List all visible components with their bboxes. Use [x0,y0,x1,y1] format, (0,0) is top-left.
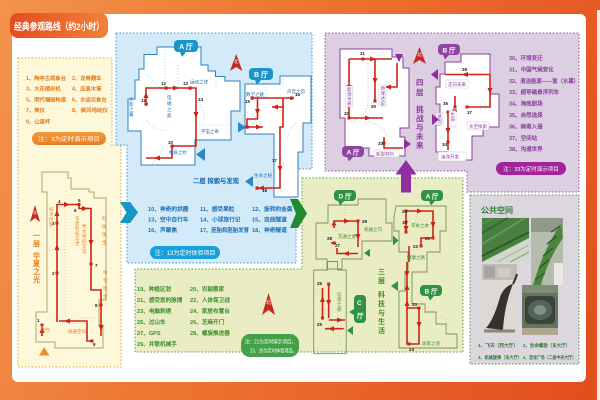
svg-text:33: 33 [378,141,384,146]
svg-text:26: 26 [317,281,323,286]
svg-text:14、小球旅行记: 14、小球旅行记 [200,216,241,224]
svg-text:29、并联机械手: 29、并联机械手 [137,340,177,348]
svg-text:5、明代福船构造: 5、明代福船构造 [26,96,67,104]
svg-text:电磁之奥: 电磁之奥 [167,94,172,119]
svg-text:19: 19 [402,220,408,225]
svg-text:注：33为定时演示项目: 注：33为定时演示项目 [503,165,559,173]
svg-text:居家之道: 居家之道 [422,340,440,347]
svg-text:地球述说: 地球述说 [381,85,386,107]
svg-text:北: 北 [33,209,37,215]
svg-text:32: 32 [344,111,350,116]
svg-text:26: 26 [402,209,408,214]
svg-text:14: 14 [198,97,204,102]
svg-text:37、空间站: 37、空间站 [509,134,538,142]
svg-text:36、病毒入侵: 36、病毒入侵 [509,122,543,130]
svg-text:光影之翼: 光影之翼 [129,96,134,118]
svg-text:15、双曲隧道: 15、双曲隧道 [252,216,287,224]
svg-text:3、机械旋律（东大厅）: 3、机械旋律（东大厅） [478,354,522,361]
svg-text:经典参观路线（约2小时）: 经典参观路线（约2小时） [14,21,104,33]
svg-text:4、恐龙广场（二层中央大厅）: 4、恐龙广场（二层中央大厅） [523,354,576,361]
svg-text:38: 38 [462,67,468,72]
svg-text:24、家居布置台: 24、家居布置台 [190,307,230,315]
svg-text:35、自然选择: 35、自然选择 [509,111,543,119]
svg-text:二层 探索与发现: 二层 探索与发现 [193,176,239,185]
svg-text:38、沟通世界: 38、沟通世界 [509,145,543,153]
svg-text:1、陶寺古观象台: 1、陶寺古观象台 [26,74,67,82]
svg-text:3、大花楼织机: 3、大花楼织机 [26,85,61,93]
svg-text:21、感受您的脉搏: 21、感受您的脉搏 [137,296,183,304]
svg-text:11、感受果粒: 11、感受果粒 [200,205,235,213]
svg-text:界文明的交流: 界文明的交流 [82,224,87,255]
svg-text:22: 22 [413,244,419,249]
svg-text:交通之便: 交通之便 [338,233,356,240]
svg-text:25、过山车: 25、过山车 [137,318,166,326]
svg-text:物质之妙: 物质之妙 [169,149,187,156]
svg-text:公共空间: 公共空间 [481,205,513,215]
svg-text:25: 25 [317,322,323,327]
svg-text:4、应县木塔: 4、应县木塔 [72,85,102,93]
svg-text:太空探索: 太空探索 [469,123,487,130]
svg-text:信息之桥: 信息之桥 [337,291,342,313]
svg-text:D 厅: D 厅 [339,193,353,201]
svg-text:北: 北 [234,58,239,65]
svg-text:三层科技与生活: 三层科技与生活 [377,268,386,335]
svg-text:12: 12 [161,81,167,86]
svg-text:23、电脑刺绣: 23、电脑刺绣 [137,307,172,315]
svg-text:机械之巧: 机械之巧 [364,226,382,233]
svg-text:四层挑战与未来: 四层挑战与未来 [415,78,424,150]
svg-text:34、海底剧场: 34、海底剧场 [509,100,543,108]
svg-text:注：3为定时演示项目: 注：3为定时演示项目 [38,135,100,143]
svg-text:8、候风地动仪: 8、候风地动仪 [72,106,109,114]
svg-text:26、芝麻开门: 26、芝麻开门 [190,318,225,326]
svg-text:A 厅: A 厅 [179,43,193,51]
svg-text:11: 11 [141,98,146,103]
svg-text:22、人体保卫战: 22、人体保卫战 [190,296,230,304]
svg-text:28: 28 [327,236,333,241]
svg-text:19、种植区划: 19、种植区划 [137,285,172,293]
svg-text:27: 27 [335,243,341,248]
svg-text:33、超导磁悬浮列车: 33、超导磁悬浮列车 [509,88,560,96]
svg-text:能源世界: 能源世界 [347,86,352,108]
svg-text:37: 37 [467,110,473,115]
svg-text:生命之秘: 生命之秘 [254,172,272,179]
svg-text:B 厅: B 厅 [443,47,457,55]
svg-text:12、旋转的金蛋: 12、旋转的金蛋 [252,205,293,213]
svg-text:32、清洁能源——氢（水幕）: 32、清洁能源——氢（水幕） [509,77,579,85]
svg-text:35: 35 [443,101,449,106]
svg-text:宇宙之奇: 宇宙之奇 [201,128,219,135]
svg-text:衣食之本: 衣食之本 [411,222,429,229]
svg-text:1、飞天（西大厅）: 1、飞天（西大厅） [478,342,518,349]
svg-text:17: 17 [272,158,278,163]
svg-text:18: 18 [262,188,268,193]
svg-text:新型材料: 新型材料 [376,151,394,158]
svg-text:13、空中自行车: 13、空中自行车 [148,216,189,224]
svg-text:29: 29 [362,219,368,224]
svg-text:候展空间: 候展空间 [68,328,86,335]
svg-text:30、环境变迁: 30、环境变迁 [509,54,543,62]
svg-text:运动之律: 运动之律 [190,79,208,86]
svg-text:北: 北 [417,51,422,58]
svg-text:23、26为定时体验项目。: 23、26为定时体验项目。 [250,347,297,355]
svg-text:31、中国气候变化: 31、中国气候变化 [509,65,554,73]
svg-text:走向未来: 走向未来 [448,81,466,88]
svg-text:北: 北 [266,299,271,306]
svg-text:17、胚胎和胚胎发育: 17、胚胎和胚胎发育 [200,226,249,234]
svg-text:31: 31 [360,51,366,56]
svg-text:27、GPS: 27、GPS [137,331,161,337]
svg-text:7、简仪: 7、简仪 [26,106,46,114]
svg-text:技术创新: 技术创新 [49,206,54,228]
svg-text:B 厅: B 厅 [254,71,268,79]
svg-text:序厅: 序厅 [41,327,50,334]
svg-text:B 厅: B 厅 [425,288,439,296]
svg-text:华夏科技与世: 华夏科技与世 [75,215,80,246]
svg-text:一层华夏之光: 一层华夏之光 [32,233,41,284]
svg-text:24: 24 [409,347,415,352]
svg-text:注：13为定时体验项目: 注：13为定时体验项目 [155,249,216,257]
svg-text:声音之韵: 声音之韵 [287,88,305,95]
svg-text:2、龙骨翻车: 2、龙骨翻车 [72,74,102,82]
svg-text:A 厅: A 厅 [347,149,360,157]
svg-text:健康之路: 健康之路 [407,254,425,261]
svg-text:20、农副惠家: 20、农副惠家 [190,285,225,293]
svg-text:10、神奇的拱圈: 10、神奇的拱圈 [148,205,189,213]
svg-text:15: 15 [245,99,251,104]
svg-text:海洋开发: 海洋开发 [441,154,459,161]
svg-text:16、声聚焦: 16、声聚焦 [148,226,177,234]
svg-text:34: 34 [442,142,448,147]
svg-text:10: 10 [168,140,174,145]
svg-text:30: 30 [371,104,377,109]
svg-text:6、水运仪象台: 6、水运仪象台 [72,96,107,104]
svg-text:生命: 生命 [451,111,456,123]
svg-text:数学之魅: 数学之魅 [246,91,264,98]
svg-text:23: 23 [412,302,418,307]
svg-text:28、螺旋推进器: 28、螺旋推进器 [190,329,230,337]
svg-text:21: 21 [425,236,431,241]
svg-text:13: 13 [183,81,189,86]
svg-text:A 厅: A 厅 [426,193,439,201]
svg-text:9、公道杯: 9、公道杯 [26,118,51,126]
svg-text:2、生命螺旋（东大厅）: 2、生命螺旋（东大厅） [523,342,570,349]
svg-text:注：21为定时演示项目，: 注：21为定时演示项目， [245,338,296,346]
svg-text:18、神奇隧道: 18、神奇隧道 [252,226,287,234]
